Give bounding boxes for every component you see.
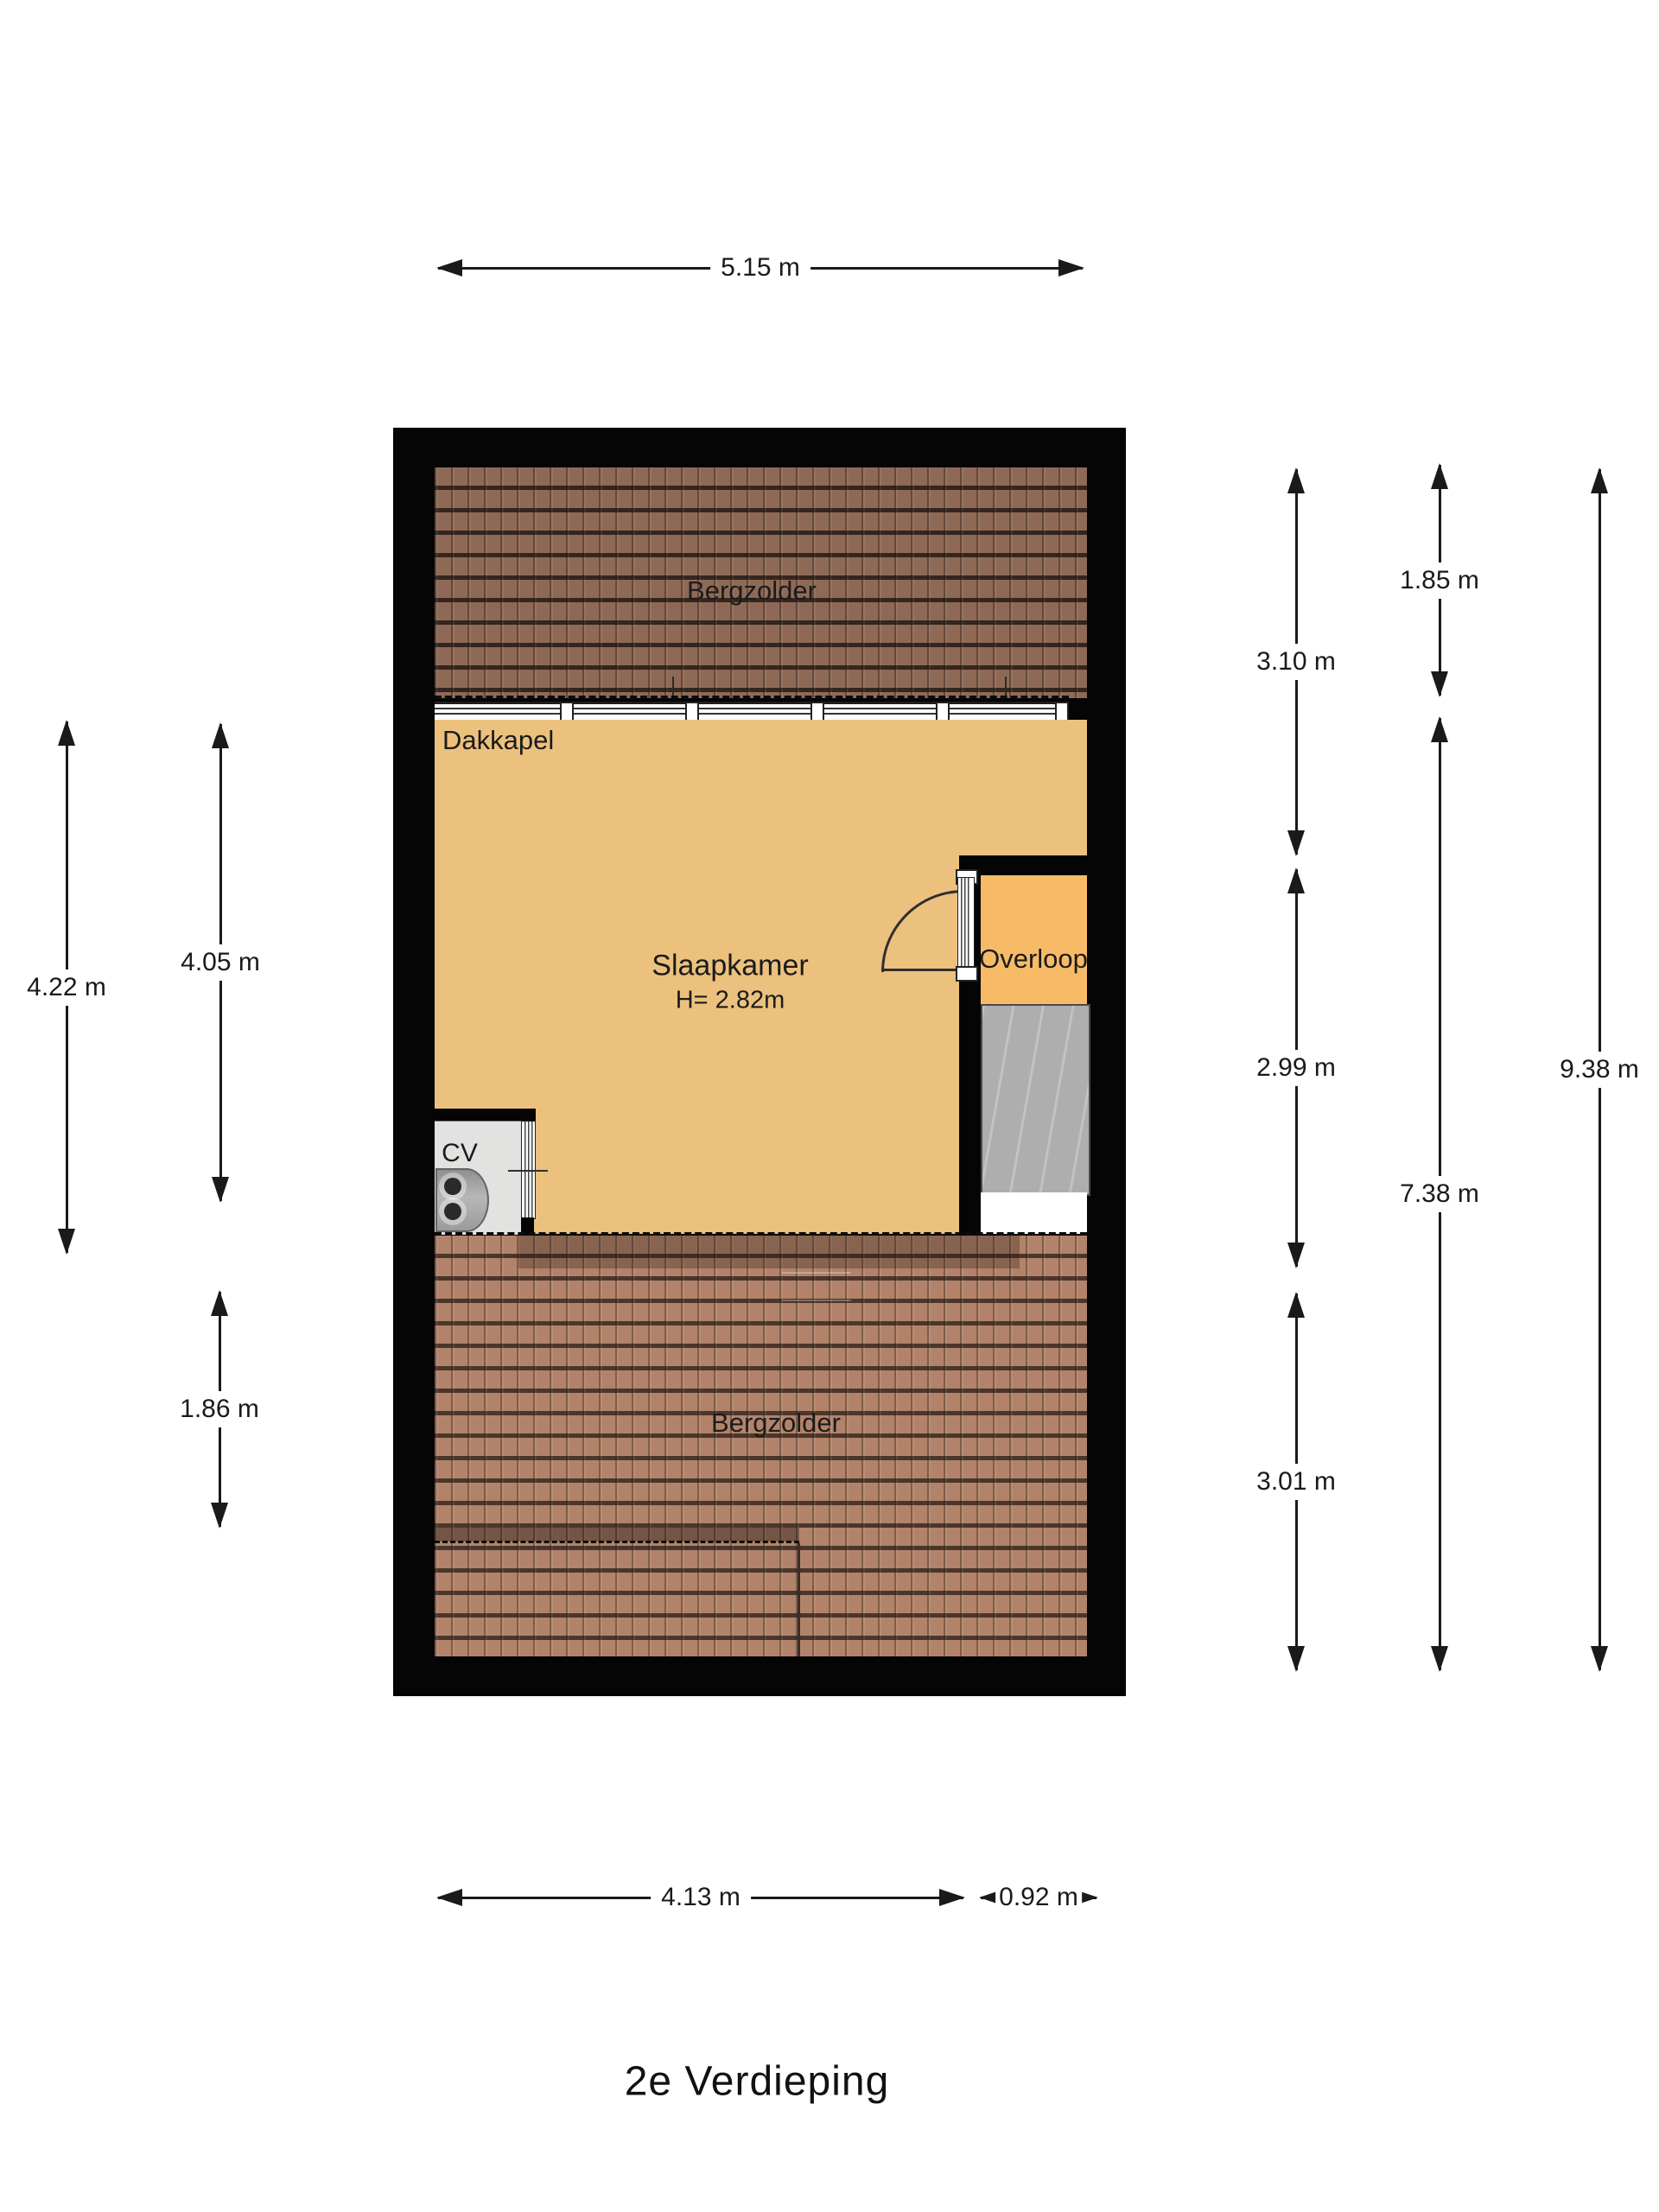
dimension-label: 4.13 m (651, 1881, 751, 1914)
room-label-cv: CV (442, 1139, 478, 1168)
door-leaf-line (881, 969, 961, 971)
arrowhead-down (58, 1229, 75, 1255)
room-label-slaapkamer: Slaapkamer (652, 950, 808, 983)
subroof-right-edge (798, 1543, 800, 1656)
dimension-label: 1.86 m (171, 1391, 268, 1427)
dimension-label: 2.99 m (1248, 1050, 1344, 1086)
arrowhead-up (58, 720, 75, 746)
room-ceiling-height: H= 2.82m (676, 987, 785, 1015)
arrowhead-down (1287, 1646, 1305, 1672)
dimension-label: 3.01 m (1248, 1464, 1344, 1500)
dimension-label: 5.15 m (710, 251, 810, 284)
arrowhead-down (1287, 830, 1305, 856)
window-tick (672, 677, 674, 696)
arrowhead-down (1431, 1646, 1448, 1672)
arrowhead-up (212, 722, 229, 748)
arrowhead-up (1431, 463, 1448, 489)
room-label-dakkapel: Dakkapel (442, 725, 554, 756)
room-label-bergzolder-bottom: Bergzolder (711, 1408, 841, 1439)
arrowhead-up (1591, 467, 1608, 493)
dimension-label: 9.38 m (1551, 1052, 1648, 1088)
arrowhead-left (436, 259, 462, 276)
room-label-bergzolder-top: Bergzolder (687, 575, 817, 607)
arrowhead-down (212, 1177, 229, 1203)
arrowhead-up (1287, 1292, 1305, 1318)
boiler-unit (435, 1168, 489, 1232)
door-frame (957, 877, 975, 974)
floor-title: 2e Verdieping (625, 2058, 890, 2106)
dimension-label: 4.05 m (172, 944, 269, 981)
roof-edge-dashed-line-top (435, 696, 1069, 699)
arrowhead-right (939, 1889, 965, 1906)
bergzolder-bottom-roof (435, 1236, 1087, 1656)
cv-closet-wall (435, 1109, 536, 1121)
arrowhead-right (1058, 259, 1084, 276)
boiler-knob (444, 1178, 461, 1195)
boiler-knob (444, 1203, 461, 1220)
dimension-label: 3.10 m (1248, 644, 1344, 680)
overloop-floor (981, 875, 1087, 1004)
dimension-label: 1.85 m (1391, 563, 1488, 599)
arrowhead-down (1591, 1646, 1608, 1672)
arrowhead-left (436, 1889, 462, 1906)
roof-shadow-band (518, 1236, 1020, 1268)
arrowhead-up (1287, 467, 1305, 493)
building-outline: Bergzolder Dakkapel Slaapkamer H= 2.82m … (393, 428, 1126, 1696)
room-label-overloop: Overloop (979, 944, 1088, 975)
arrowhead-down (1287, 1243, 1305, 1268)
subroof-shadow-band (435, 1528, 799, 1541)
dimension-label: 7.38 m (1391, 1176, 1488, 1212)
dimension-label: 0.92 m (995, 1881, 1082, 1914)
arrowhead-down (1431, 671, 1448, 697)
arrowhead-up (1287, 868, 1305, 893)
arrowhead-up (1431, 716, 1448, 742)
door-jamb-bottom (956, 966, 978, 982)
arrowhead-up (211, 1290, 228, 1316)
dimension-label: 4.22 m (18, 969, 115, 1006)
window-tick (1005, 677, 1007, 696)
cv-door-tick (508, 1170, 548, 1172)
subroof-dashed-line (435, 1541, 799, 1543)
floorplan-canvas: Bergzolder Dakkapel Slaapkamer H= 2.82m … (0, 0, 1659, 2212)
arrowhead-down (211, 1503, 228, 1529)
staircase (981, 1004, 1090, 1196)
roof-window-faint (782, 1272, 851, 1301)
stair-void (981, 1192, 1087, 1234)
